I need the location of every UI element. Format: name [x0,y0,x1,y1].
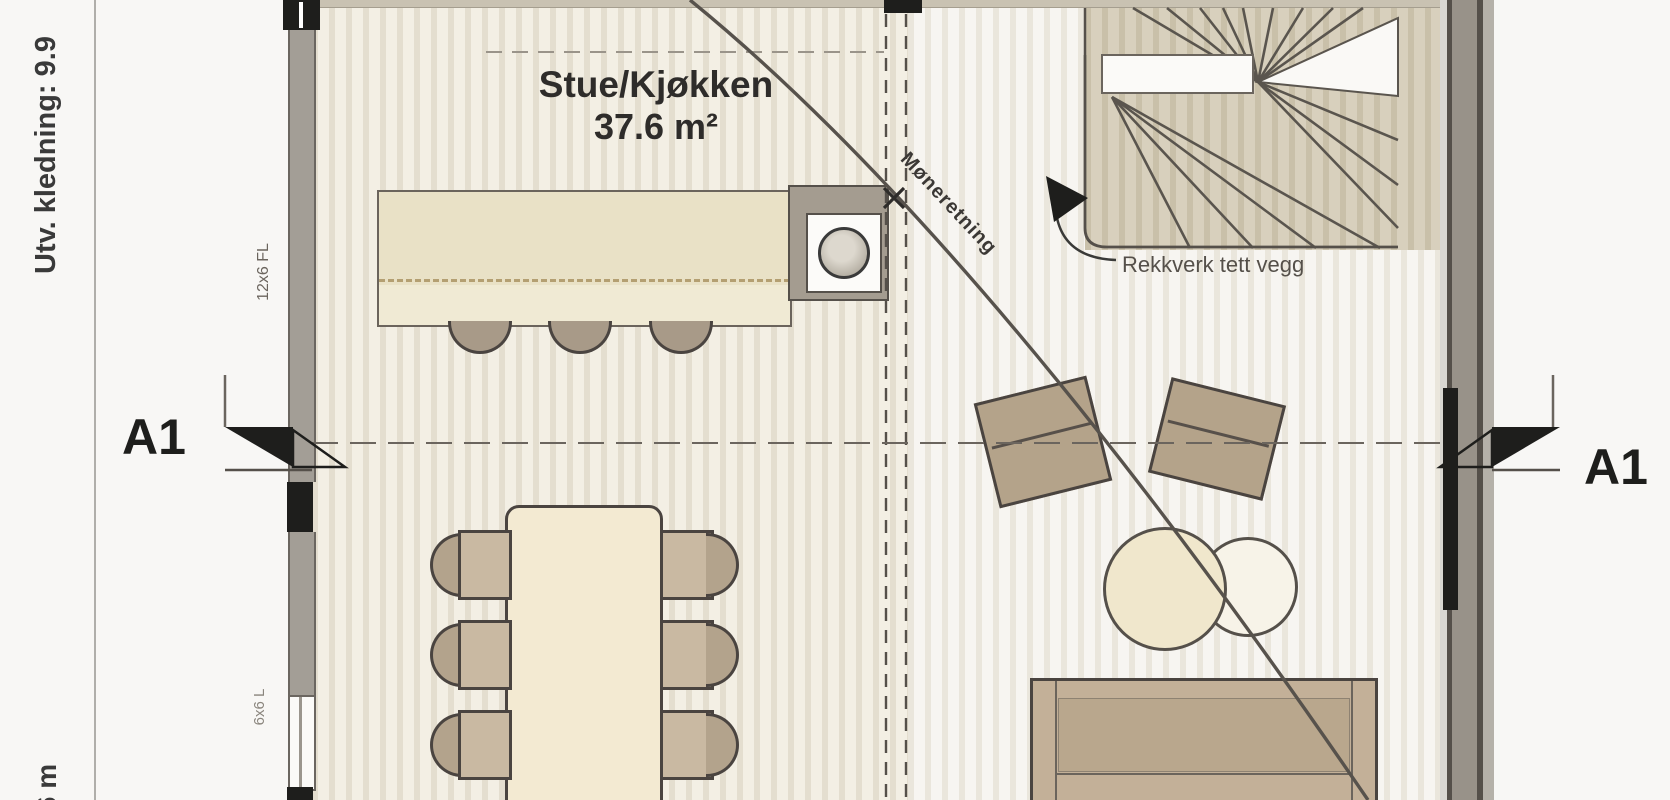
bottom-dimension-label: 6 m [31,733,65,800]
kitchen-counter [377,190,792,327]
armchair-seam [1168,419,1269,447]
staircase-area [1085,0,1440,250]
top-wall [312,0,1445,8]
right-wall-outer-face [1483,0,1494,800]
sofa-seat-line [1055,773,1353,775]
section-label-a1-right: A1 [1584,438,1648,496]
floor-plan: Stue/Kjøkken 37.6 m² A1 A1 Møneretning R… [0,0,1670,800]
kitchen-counter-dashed-line [379,279,790,282]
section-label-a1-left: A1 [122,408,186,466]
kitchen-counter-front [379,285,790,325]
dining-chair [458,620,512,690]
right-wall-dark-bar [1443,388,1458,610]
dimension-line-left [94,0,96,800]
stove-sink-unit [788,185,889,301]
window-slit [299,2,303,28]
window-size-label-top: 12x6 FL [255,212,277,332]
dining-table [505,505,663,800]
exterior-cladding-label: Utv. kledning: 9.9 [30,0,66,335]
dining-chair [458,530,512,600]
armchair-seam [992,422,1091,449]
left-wall-upper [288,30,316,482]
stove-inner-panel [806,213,882,293]
left-wall-bottom-block [287,787,313,800]
section-arrow-icon [1492,427,1560,467]
left-wall-dark-block [287,482,313,532]
section-arrow-icon [225,427,293,467]
railing-label: Rekkverk tett vegg [1122,252,1304,278]
left-wall-corner-block [283,0,320,30]
sofa-back-cushion [1058,698,1350,772]
sofa-arm-line [1351,681,1353,800]
sofa [1030,678,1378,800]
room-label: Stue/Kjøkken [480,64,832,106]
sofa-arm-line [1055,681,1057,800]
left-wall-middle [288,532,316,695]
room-area-label: 37.6 m² [480,106,832,148]
dining-chair [458,710,512,780]
sink-basin [818,227,870,279]
left-wall-window [288,695,316,791]
coffee-table [1103,527,1227,651]
wall-block-top-middle [884,0,922,13]
window-glass-line [299,697,302,789]
window-size-label-bottom: 6x6 L [251,652,271,762]
